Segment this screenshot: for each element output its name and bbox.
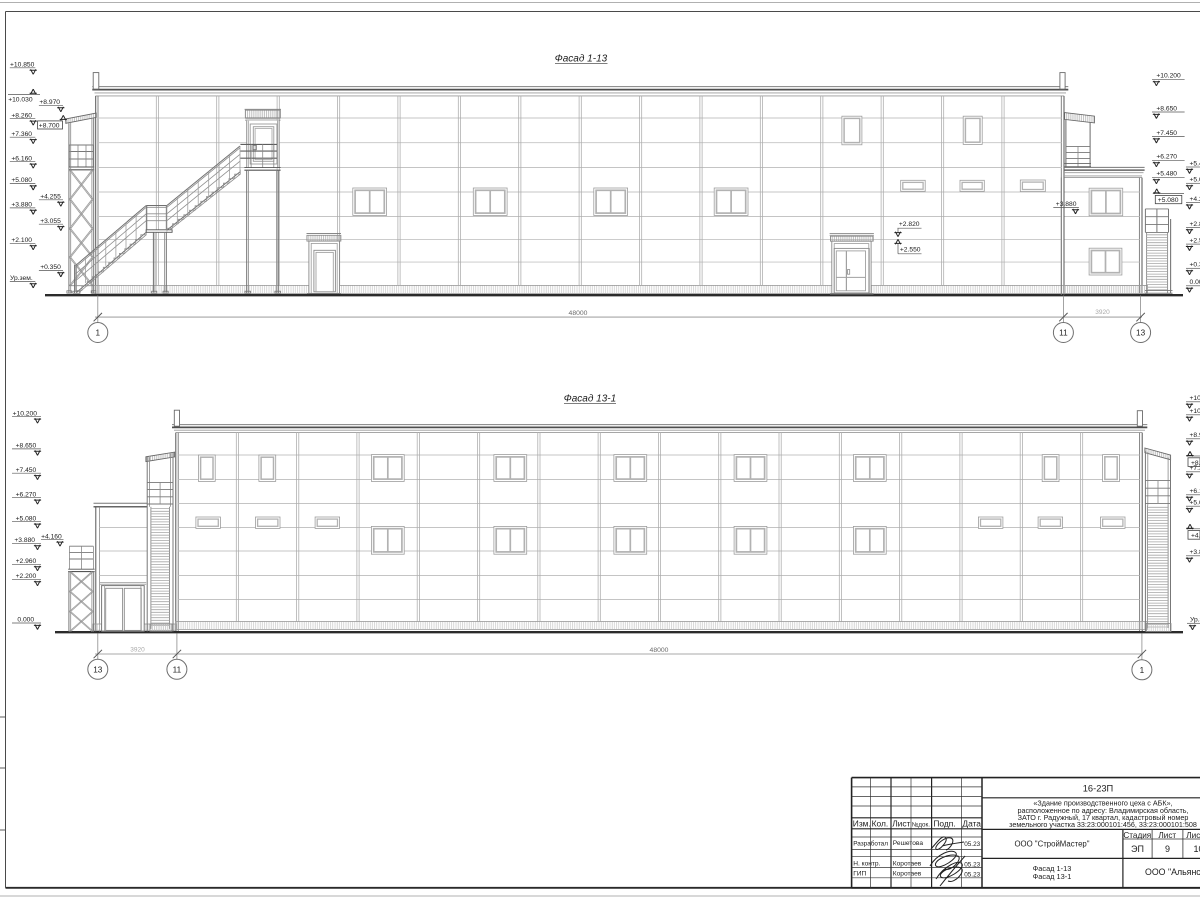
svg-text:Кол.: Кол. (872, 819, 889, 829)
svg-text:+2.820: +2.820 (1190, 221, 1200, 228)
svg-text:48000: 48000 (650, 647, 669, 654)
svg-text:Разработал: Разработал (853, 839, 888, 847)
svg-text:05.23: 05.23 (964, 861, 980, 868)
svg-text:+5.480: +5.480 (1190, 161, 1200, 168)
svg-text:+8.260: +8.260 (11, 112, 32, 119)
svg-text:Коротаев: Коротаев (893, 871, 922, 878)
svg-text:Ур.зем.: Ур.зем. (10, 275, 33, 282)
svg-text:13: 13 (93, 665, 103, 674)
svg-text:Фасад 13-1: Фасад 13-1 (564, 394, 616, 405)
svg-text:+8.970: +8.970 (1190, 432, 1200, 439)
svg-text:48000: 48000 (569, 310, 588, 317)
svg-text:+5.480: +5.480 (1156, 171, 1177, 178)
svg-text:Н. контр.: Н. контр. (853, 860, 880, 867)
svg-text:Лист: Лист (892, 819, 910, 829)
svg-text:+5.080: +5.080 (11, 177, 32, 184)
svg-text:1: 1 (96, 329, 101, 338)
svg-text:10: 10 (1194, 844, 1200, 854)
svg-text:Фасад 13-1: Фасад 13-1 (1033, 872, 1072, 881)
svg-text:Лист: Лист (1186, 831, 1200, 840)
svg-text:земельного участка 33:23:00010: земельного участка 33:23:000101:456, 33:… (1009, 820, 1197, 829)
svg-text:+2.550: +2.550 (900, 247, 921, 254)
svg-text:+6.160: +6.160 (1190, 488, 1200, 495)
svg-text:Изм.: Изм. (853, 819, 871, 829)
svg-text:+6.160: +6.160 (11, 155, 32, 162)
svg-text:05.23: 05.23 (964, 841, 980, 848)
svg-text:ООО "СтройМастер": ООО "СтройМастер" (1014, 839, 1089, 848)
svg-text:+2.820: +2.820 (899, 221, 920, 228)
svg-text:Фасад 1-13: Фасад 1-13 (555, 54, 608, 65)
svg-text:+3.880: +3.880 (1056, 201, 1077, 208)
svg-text:+8.970: +8.970 (39, 99, 60, 106)
svg-text:3920: 3920 (130, 647, 145, 654)
svg-text:+10.200: +10.200 (1156, 73, 1181, 80)
svg-text:+8.700: +8.700 (39, 123, 60, 130)
svg-text:16-23П: 16-23П (1083, 784, 1113, 794)
svg-text:+3.880: +3.880 (1190, 549, 1200, 556)
svg-text:+6.270: +6.270 (1156, 154, 1177, 161)
svg-text:+5.080: +5.080 (1190, 500, 1200, 507)
svg-text:ГИП: ГИП (853, 871, 866, 878)
svg-text:+4.255: +4.255 (1191, 533, 1200, 540)
svg-text:+7.450: +7.450 (1156, 130, 1177, 137)
svg-text:+2.550: +2.550 (1190, 238, 1200, 245)
svg-text:9: 9 (1165, 844, 1170, 854)
svg-text:11: 11 (1059, 329, 1068, 338)
svg-text:+5.080: +5.080 (1158, 197, 1179, 204)
svg-text:Подп.: Подп. (933, 819, 955, 829)
svg-text:0.000: 0.000 (1190, 279, 1200, 286)
svg-text:Стадия: Стадия (1123, 831, 1151, 840)
svg-text:05.23: 05.23 (964, 871, 980, 878)
svg-text:+0.350: +0.350 (40, 264, 61, 271)
svg-text:3920: 3920 (1095, 309, 1110, 316)
svg-text:+10.030: +10.030 (8, 96, 33, 103)
svg-text:+7.360: +7.360 (11, 131, 32, 138)
svg-text:Решетова: Решетова (893, 840, 924, 847)
svg-text:Коротаев: Коротаев (893, 860, 922, 867)
svg-text:+8.650: +8.650 (1156, 105, 1177, 112)
svg-text:+3.055: +3.055 (40, 218, 61, 225)
svg-text:11: 11 (173, 665, 182, 674)
svg-text:Лист: Лист (1158, 831, 1176, 840)
svg-text:+5.080: +5.080 (1190, 177, 1200, 184)
svg-text:+3.880: +3.880 (11, 202, 32, 209)
svg-text:+4.255: +4.255 (40, 193, 61, 200)
svg-text:Ур.зем.: Ур.зем. (1190, 617, 1200, 624)
svg-text:Дата: Дата (962, 819, 981, 829)
svg-text:+10.030: +10.030 (1190, 408, 1200, 415)
svg-text:+2.100: +2.100 (11, 237, 32, 244)
svg-text:№док.: №док. (912, 821, 930, 828)
svg-text:+0.350: +0.350 (1190, 262, 1200, 269)
svg-text:ЭП: ЭП (1131, 844, 1144, 854)
svg-text:ООО "Альянс": ООО "Альянс" (1145, 867, 1200, 877)
svg-text:+10.850: +10.850 (10, 62, 35, 69)
svg-text:1: 1 (1140, 666, 1145, 675)
svg-text:+10.850: +10.850 (1190, 395, 1200, 402)
svg-text:13: 13 (1136, 329, 1146, 338)
svg-text:+8.700: +8.700 (1191, 460, 1200, 467)
svg-text:+4.255: +4.255 (1190, 196, 1200, 203)
